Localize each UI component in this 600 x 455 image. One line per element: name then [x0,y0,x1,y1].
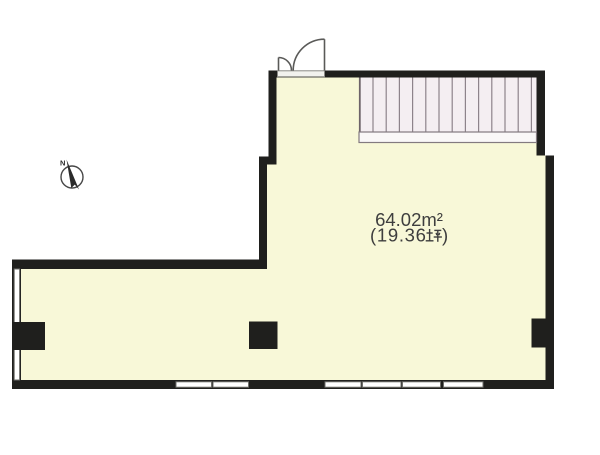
svg-text:): ) [442,225,448,246]
svg-text:N: N [60,159,65,168]
svg-text:(19.36: (19.36 [370,225,427,246]
